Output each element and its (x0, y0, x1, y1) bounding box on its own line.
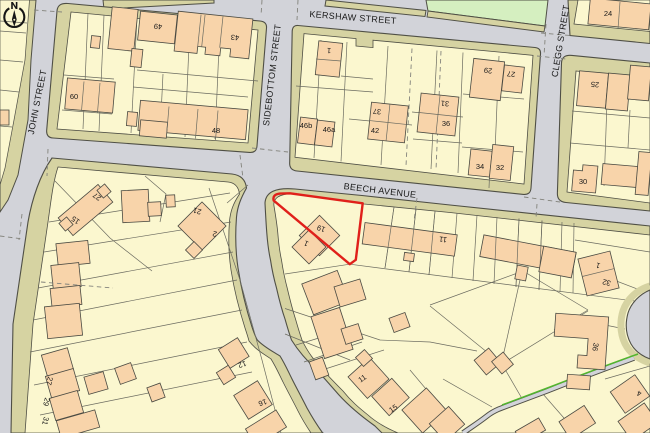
svg-text:43: 43 (230, 33, 239, 43)
svg-text:37: 37 (372, 107, 381, 117)
svg-text:36: 36 (590, 342, 600, 352)
svg-text:48: 48 (212, 126, 220, 135)
svg-text:11: 11 (439, 235, 448, 245)
svg-text:1: 1 (327, 46, 332, 55)
svg-text:31: 31 (440, 99, 449, 109)
svg-text:27: 27 (506, 69, 515, 79)
svg-text:30: 30 (579, 177, 587, 186)
svg-text:24: 24 (604, 9, 612, 18)
svg-text:34: 34 (476, 162, 484, 171)
svg-text:49: 49 (153, 22, 162, 32)
svg-text:36: 36 (442, 119, 450, 128)
svg-text:60: 60 (70, 92, 78, 101)
svg-text:46a: 46a (323, 125, 336, 134)
svg-text:25: 25 (590, 80, 599, 90)
svg-text:46b: 46b (300, 121, 313, 130)
svg-text:32: 32 (496, 163, 504, 172)
svg-text:29: 29 (483, 66, 492, 76)
svg-text:42: 42 (371, 126, 379, 135)
